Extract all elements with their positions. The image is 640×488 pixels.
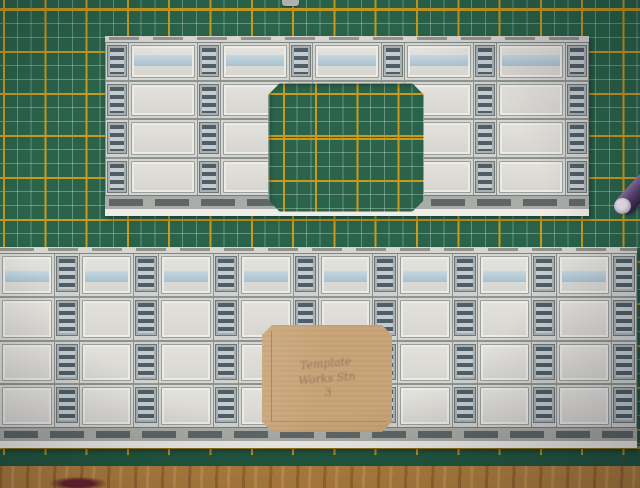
vent-column [611,254,637,296]
louvre-vent-icon [568,46,587,76]
vent-column [133,254,159,296]
wall-panel [223,45,287,78]
vent-column [105,120,129,157]
vent-column [473,82,497,119]
vent-column [289,43,313,80]
vent-column [133,342,159,384]
wall-panel [82,256,132,294]
vent-column [473,120,497,157]
louvre-vent-icon [375,257,395,291]
louvre-vent-icon [200,162,219,192]
vent-column [197,82,221,119]
window-band [318,55,376,66]
window-band [244,271,288,282]
louvre-vent-icon [568,123,587,153]
louvre-vent-icon [200,85,219,115]
purple-pen-cap [610,166,640,220]
pen-cap-end [614,198,631,214]
window-band [134,55,192,66]
louvre-vent-icon [476,162,495,192]
vent-column [611,342,637,384]
wall-panel [559,300,609,338]
wall-panel [559,387,609,425]
wall-panel [82,344,132,382]
wall-panel [161,300,211,338]
vent-column [213,254,239,296]
window-band [226,55,284,66]
louvre-vent-icon [200,46,219,76]
vent-column [473,159,497,196]
wall-panel [82,300,132,338]
wall-panel [315,45,379,78]
vent-column [565,120,589,157]
louvre-vent-icon [384,46,403,76]
vent-column [452,254,478,296]
louvre-vent-icon [534,257,554,291]
louvre-vent-icon [534,388,554,422]
vent-column [372,254,398,296]
wall-panel [161,256,211,294]
louvre-vent-icon [108,162,127,192]
wall-panel [559,256,609,294]
wall-panel [400,344,450,382]
wall-panel [131,45,195,78]
louvre-vent-icon [136,301,156,335]
wall-panel [131,122,195,155]
louvre-vent-icon [614,257,634,291]
louvre-vent-icon [216,257,236,291]
cardboard-template: Template Works Stn 3 [262,325,392,432]
wall-panel [499,45,563,78]
louvre-vent-icon [108,46,127,76]
vent-column [565,159,589,196]
wall-panel [131,84,195,117]
window-band [85,271,129,282]
louvre-vent-icon [534,301,554,335]
louvre-vent-icon [216,388,236,422]
wall-panel [2,344,52,382]
louvre-vent-icon [136,345,156,379]
wall-panel [480,300,530,338]
vent-column [473,43,497,80]
vent-column [531,298,557,340]
wall-row [0,254,637,298]
vent-column [565,82,589,119]
vent-column [213,385,239,427]
vent-column [133,385,159,427]
wall-panel [499,161,563,194]
louvre-vent-icon [296,257,316,291]
wall-panel [241,256,291,294]
wall-panel [480,387,530,425]
dark-red-smudge [50,477,106,488]
louvre-vent-icon [476,85,495,115]
window-band [562,271,606,282]
wall-panel [499,84,563,117]
louvre-vent-icon [614,301,634,335]
louvre-vent-icon [136,257,156,291]
vent-column [293,254,319,296]
wall-panel [559,344,609,382]
wall-panel [499,122,563,155]
window-band [324,271,368,282]
vent-column [105,43,129,80]
wall-panel [161,344,211,382]
wall-top-coping [0,247,637,254]
plinth-dashes [4,431,633,438]
window-band [164,271,208,282]
wall-panel [131,161,195,194]
louvre-vent-icon [57,301,77,335]
wall-panel [2,256,52,294]
louvre-vent-icon [57,388,77,422]
wall-panel [161,387,211,425]
louvre-vent-icon [57,257,77,291]
vent-column [105,82,129,119]
wall-top-coping [105,36,589,43]
vent-column [105,159,129,196]
wall-panel [480,344,530,382]
vent-column [565,43,589,80]
louvre-vent-icon [136,388,156,422]
wall-panel [400,256,450,294]
mat-edge-ruler [0,446,640,466]
vent-column [213,298,239,340]
louvre-vent-icon [108,123,127,153]
vent-column [531,254,557,296]
wall-panel [407,45,471,78]
doorway-cutout-opening [268,83,424,212]
vent-column [452,298,478,340]
louvre-vent-icon [476,123,495,153]
vent-column [452,385,478,427]
vent-column [133,298,159,340]
vent-column [54,254,80,296]
wall-panel [2,387,52,425]
window-band [502,55,560,66]
vent-column [213,342,239,384]
louvre-vent-icon [108,85,127,115]
vent-column [531,385,557,427]
louvre-vent-icon [216,301,236,335]
louvre-vent-icon [568,162,587,192]
vent-column [54,298,80,340]
photo-scene: Template Works Stn 3 [0,0,640,488]
louvre-vent-icon [455,345,475,379]
vent-column [611,385,637,427]
louvre-vent-icon [476,46,495,76]
wall-panel [82,387,132,425]
wall-panel [400,300,450,338]
wall-panel [400,387,450,425]
wall-bottom-edge [0,441,637,448]
window-band [5,271,49,282]
louvre-vent-icon [614,388,634,422]
note-line-3: 3 [324,386,332,400]
handwritten-note: Template Works Stn 3 [258,320,397,438]
louvre-vent-icon [455,257,475,291]
wall-panel [321,256,371,294]
louvre-vent-icon [534,345,554,379]
wall-panel [2,300,52,338]
vent-column [197,159,221,196]
vent-column [54,342,80,384]
vent-column [197,43,221,80]
vent-column [452,342,478,384]
louvre-vent-icon [455,301,475,335]
window-band [483,271,527,282]
louvre-vent-icon [216,345,236,379]
wall-row [105,43,589,82]
window-band [403,271,447,282]
vent-column [54,385,80,427]
vent-column [611,298,637,340]
grey-object-top-edge [282,0,299,6]
louvre-vent-icon [568,85,587,115]
vent-column [531,342,557,384]
louvre-vent-icon [455,388,475,422]
louvre-vent-icon [200,123,219,153]
window-band [410,55,468,66]
louvre-vent-icon [614,345,634,379]
louvre-vent-icon [57,345,77,379]
vent-column [381,43,405,80]
louvre-vent-icon [292,46,311,76]
vent-column [197,120,221,157]
wall-panel [480,256,530,294]
